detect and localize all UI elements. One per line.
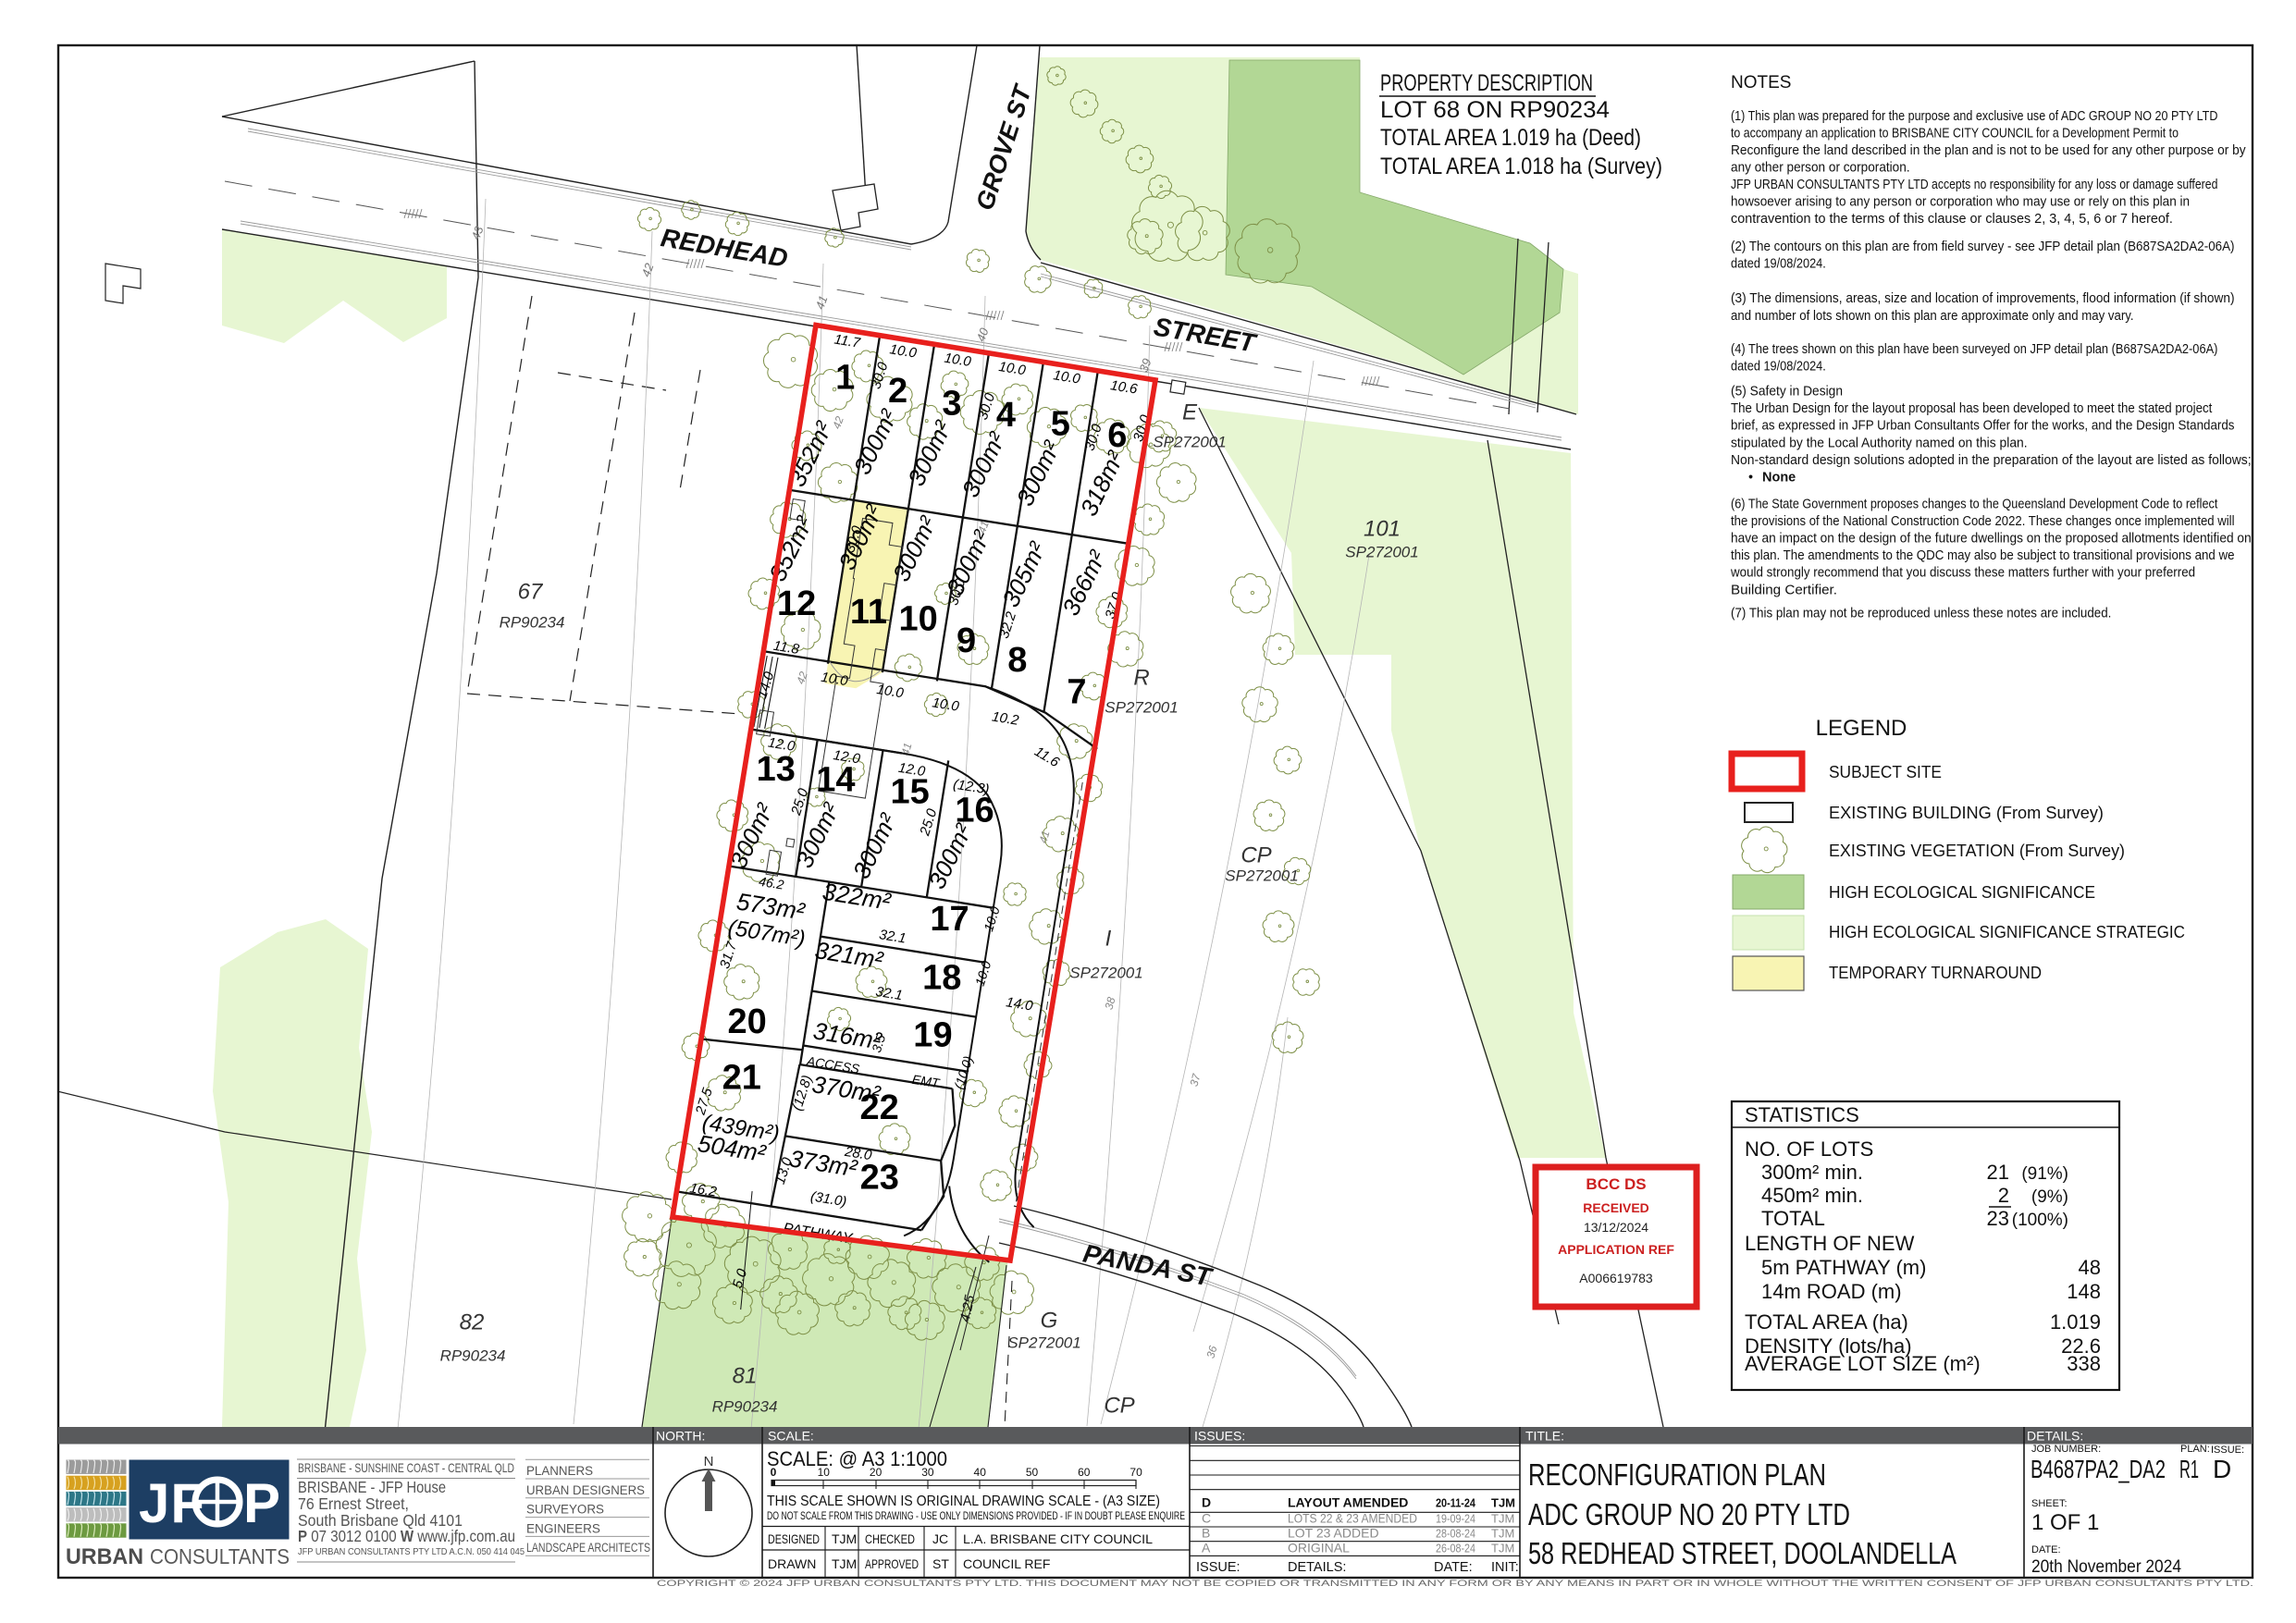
svg-text:Building Certifier.: Building Certifier. — [1731, 583, 1837, 597]
svg-text:7: 7 — [1067, 672, 1086, 711]
svg-text:DETAILS:: DETAILS: — [1288, 1560, 1346, 1575]
svg-text:SCALE:: SCALE: — [768, 1429, 814, 1444]
svg-text:SUBJECT SITE: SUBJECT SITE — [1829, 763, 1942, 781]
svg-text:300m²: 300m² — [1011, 436, 1067, 510]
svg-text:NO. OF LOTS: NO. OF LOTS — [1745, 1137, 1873, 1161]
svg-text:20-11-24: 20-11-24 — [1436, 1496, 1476, 1510]
svg-text:450m² min.: 450m² min. — [1761, 1184, 1863, 1207]
svg-text:318m²: 318m² — [1074, 446, 1129, 521]
svg-text:21: 21 — [1987, 1161, 2009, 1184]
svg-text:41: 41 — [812, 294, 830, 312]
svg-text:EXISTING VEGETATION (From Surv: EXISTING VEGETATION (From Survey) — [1829, 842, 2125, 860]
svg-text:REDHEAD: REDHEAD — [659, 223, 790, 273]
svg-text:APPLICATION REF: APPLICATION REF — [1558, 1242, 1674, 1257]
svg-text:THIS SCALE SHOWN IS ORIGINAL D: THIS SCALE SHOWN IS ORIGINAL DRAWING SCA… — [767, 1494, 1160, 1509]
svg-text:322m²: 322m² — [821, 878, 894, 916]
svg-text:APPROVED: APPROVED — [865, 1556, 919, 1571]
svg-text:23: 23 — [860, 1159, 899, 1198]
svg-text:40: 40 — [973, 326, 991, 343]
svg-text:10.0: 10.0 — [981, 904, 1003, 933]
svg-text:RP90234: RP90234 — [440, 1347, 506, 1365]
svg-text:DESIGNED: DESIGNED — [768, 1531, 820, 1546]
svg-text:8: 8 — [1007, 641, 1027, 680]
svg-text:1: 1 — [835, 359, 855, 398]
svg-text:3: 3 — [942, 385, 961, 424]
svg-text:(6) The State Government propo: (6) The State Government proposes change… — [1731, 498, 2217, 512]
svg-text:148: 148 — [2067, 1280, 2101, 1303]
svg-text:13/12/2024: 13/12/2024 — [1584, 1220, 1648, 1235]
svg-text:338: 338 — [2067, 1352, 2101, 1375]
svg-text:300m² min.: 300m² min. — [1761, 1161, 1863, 1184]
svg-text:JOB NUMBER:: JOB NUMBER: — [2031, 1444, 2101, 1455]
svg-text:GROVE ST: GROVE ST — [970, 80, 1037, 214]
svg-text:(31.0): (31.0) — [809, 1188, 847, 1210]
svg-text:67: 67 — [518, 580, 544, 605]
svg-text:10.0: 10.0 — [888, 341, 918, 361]
svg-text:31.7: 31.7 — [717, 940, 740, 971]
svg-text:this plan. The amendments to t: this plan. The amendments to the QDC may… — [1731, 548, 2235, 563]
svg-text:dated 19/08/2024.: dated 19/08/2024. — [1731, 257, 1826, 272]
svg-text:TOTAL AREA 1.018 ha (Survey): TOTAL AREA 1.018 ha (Survey) — [1380, 154, 1662, 179]
svg-text:ISSUES:: ISSUES: — [1194, 1429, 1245, 1444]
svg-text:ENGINEERS: ENGINEERS — [526, 1521, 600, 1535]
svg-text:50: 50 — [1026, 1466, 1039, 1479]
svg-text:1 OF 1: 1 OF 1 — [2031, 1510, 2099, 1535]
svg-text:L.A. BRISBANE CITY COUNCIL: L.A. BRISBANE CITY COUNCIL — [963, 1531, 1153, 1546]
svg-text:10: 10 — [898, 600, 937, 639]
svg-text:38: 38 — [1103, 995, 1118, 1011]
svg-text:(2) The contours on this plan: (2) The contours on this plan are from f… — [1731, 240, 2235, 254]
svg-text:5: 5 — [1051, 404, 1070, 443]
svg-text:SP272001: SP272001 — [1105, 699, 1178, 717]
svg-text:20th November 2024: 20th November 2024 — [2031, 1557, 2181, 1577]
svg-text:dated 19/08/2024.: dated 19/08/2024. — [1731, 360, 1826, 375]
svg-text:any other person or corporatio: any other person or corporation. — [1731, 161, 1910, 176]
svg-text:•: • — [1748, 470, 1753, 485]
svg-text:stipulated by the Local Author: stipulated by the Local Authority named … — [1731, 436, 2028, 450]
svg-text:46.2: 46.2 — [758, 874, 785, 892]
svg-text:RP90234: RP90234 — [500, 614, 565, 632]
svg-text:10.0: 10.0 — [943, 350, 972, 370]
svg-text:1.019: 1.019 — [2050, 1310, 2101, 1334]
svg-text:ORIGINAL: ORIGINAL — [1288, 1541, 1350, 1555]
svg-text:20: 20 — [870, 1466, 883, 1479]
svg-text:23: 23 — [1987, 1207, 2009, 1230]
svg-text:B: B — [1202, 1526, 1210, 1541]
svg-text:None: None — [1762, 470, 1796, 485]
svg-text:(4) The trees shown on this pl: (4) The trees shown on this plan have be… — [1731, 342, 2217, 357]
svg-text:TJM: TJM — [1491, 1527, 1514, 1541]
svg-text:CHECKED: CHECKED — [865, 1531, 915, 1546]
svg-text:DATE:: DATE: — [1434, 1560, 1473, 1575]
svg-text:CP: CP — [1241, 843, 1271, 868]
svg-text:TJM: TJM — [832, 1556, 857, 1571]
svg-text:10.6: 10.6 — [1109, 377, 1139, 397]
svg-text:60: 60 — [1078, 1466, 1091, 1479]
svg-text:11.6: 11.6 — [1031, 744, 1062, 770]
svg-text:13: 13 — [757, 750, 796, 789]
svg-text:LOT 23 ADDED: LOT 23 ADDED — [1288, 1526, 1379, 1541]
svg-text:28-08-24: 28-08-24 — [1436, 1527, 1475, 1541]
svg-text:TOTAL: TOTAL — [1761, 1207, 1825, 1230]
svg-text:(10.0): (10.0) — [951, 1054, 976, 1091]
svg-text:R1: R1 — [2179, 1455, 2199, 1483]
svg-text:JFP URBAN CONSULTANTS PTY LTD: JFP URBAN CONSULTANTS PTY LTD A.C.N. 050… — [298, 1546, 525, 1557]
svg-text:58 REDHEAD STREET, DOOLANDELLA: 58 REDHEAD STREET, DOOLANDELLA — [1528, 1536, 1957, 1570]
svg-text:TJM: TJM — [832, 1531, 857, 1546]
svg-text:brief, as expressed in JFP Urb: brief, as expressed in JFP Urban Consult… — [1731, 419, 2235, 434]
svg-text:76 Ernest Street,: 76 Ernest Street, — [298, 1494, 409, 1513]
svg-text:JC: JC — [932, 1531, 948, 1546]
svg-text:P: P — [243, 1472, 280, 1534]
svg-text:6: 6 — [1107, 416, 1127, 455]
svg-text:42: 42 — [794, 670, 810, 686]
svg-text:COPYRIGHT © 2024 JFP URBAN CON: COPYRIGHT © 2024 JFP URBAN CONSULTANTS P… — [657, 1579, 2253, 1588]
svg-text:JFP URBAN CONSULTANTS PTY LTD: JFP URBAN CONSULTANTS PTY LTD accepts no… — [1731, 178, 2217, 192]
svg-text:(7) This plan may not be repro: (7) This plan may not be reproduced unle… — [1731, 607, 2111, 621]
svg-text:37: 37 — [1188, 1071, 1204, 1088]
svg-text:C: C — [1202, 1511, 1211, 1526]
svg-text:32.2: 32.2 — [996, 609, 1019, 641]
svg-text:AVERAGE LOT SIZE (m²): AVERAGE LOT SIZE (m²) — [1745, 1352, 1981, 1375]
svg-text:DRAWN: DRAWN — [768, 1556, 816, 1571]
svg-text:NORTH:: NORTH: — [656, 1429, 705, 1444]
svg-text:TJM: TJM — [1491, 1542, 1514, 1555]
svg-text:SP272001: SP272001 — [1345, 544, 1418, 561]
svg-text:INIT:: INIT: — [1491, 1560, 1519, 1575]
svg-text:70: 70 — [1129, 1466, 1142, 1479]
svg-text:2: 2 — [888, 372, 907, 411]
svg-text:STREET: STREET — [1152, 312, 1260, 358]
svg-text:10.0: 10.0 — [931, 695, 960, 714]
svg-text:A006619783: A006619783 — [1579, 1271, 1653, 1285]
svg-text:10.0: 10.0 — [875, 682, 905, 701]
svg-text:would strongly recommend that: would strongly recommend that you discus… — [1730, 566, 2195, 581]
svg-text:BRISBANE - SUNSHINE COAST - CE: BRISBANE - SUNSHINE COAST - CENTRAL QLD — [298, 1460, 514, 1475]
svg-text:300m²: 300m² — [941, 525, 996, 600]
svg-text:11.7: 11.7 — [833, 332, 861, 351]
svg-text:TITLE:: TITLE: — [1525, 1429, 1564, 1444]
svg-text:LOT 68 ON RP90234: LOT 68 ON RP90234 — [1380, 97, 1610, 123]
svg-text:14.0: 14.0 — [1005, 994, 1034, 1014]
svg-text:352m²: 352m² — [763, 511, 819, 586]
svg-text:The Urban Design for the layou: The Urban Design for the layout proposal… — [1731, 401, 2212, 416]
svg-text:18: 18 — [922, 959, 961, 998]
svg-text:10.0: 10.0 — [997, 359, 1027, 378]
svg-text:LEGEND: LEGEND — [1816, 716, 1907, 741]
svg-text:10: 10 — [818, 1466, 831, 1479]
svg-text:DETAILS:: DETAILS: — [2027, 1429, 2083, 1444]
svg-text:SHEET:: SHEET: — [2031, 1498, 2068, 1509]
svg-text:ISSUE:: ISSUE: — [1196, 1560, 1241, 1575]
svg-text:BCC DS: BCC DS — [1586, 1175, 1646, 1193]
svg-text:contravention to the terms of: contravention to the terms of this claus… — [1731, 212, 2173, 227]
svg-text:STATISTICS: STATISTICS — [1745, 1103, 1859, 1126]
svg-text:(91%): (91%) — [2021, 1164, 2068, 1184]
svg-text:11.8: 11.8 — [772, 638, 801, 658]
svg-text:(3) The dimensions, areas, siz: (3) The dimensions, areas, size and loca… — [1731, 291, 2235, 306]
svg-text:COUNCIL REF: COUNCIL REF — [963, 1556, 1050, 1571]
svg-text:PLAN:: PLAN: — [2180, 1444, 2210, 1455]
svg-text:10.2: 10.2 — [991, 708, 1020, 728]
svg-text:(100%): (100%) — [2012, 1211, 2068, 1230]
svg-text:CONSULTANTS: CONSULTANTS — [150, 1544, 290, 1568]
svg-text:the provisions of the National: the provisions of the National Construct… — [1731, 514, 2235, 529]
svg-text:howsoever arising to any perso: howsoever arising to any person or corpo… — [1731, 195, 2190, 210]
svg-text:D: D — [1202, 1495, 1211, 1510]
svg-text:CP: CP — [1104, 1394, 1134, 1419]
svg-text:26-08-24: 26-08-24 — [1436, 1542, 1475, 1555]
svg-text:Non-standard design solutions: Non-standard design solutions adopted in… — [1731, 453, 2252, 468]
svg-text:A: A — [1202, 1541, 1211, 1555]
svg-text:I: I — [1105, 927, 1112, 952]
svg-text:have an impact on the design o: have an impact on the design of the futu… — [1731, 532, 2252, 547]
svg-text:RP90234: RP90234 — [712, 1398, 778, 1416]
svg-text:30.0: 30.0 — [975, 391, 998, 423]
svg-text:LOTS 22 & 23 AMENDED: LOTS 22 & 23 AMENDED — [1288, 1511, 1417, 1526]
svg-text:HIGH ECOLOGICAL SIGNIFICANCE S: HIGH ECOLOGICAL SIGNIFICANCE STRATEGIC — [1829, 923, 2185, 941]
svg-text:305m²: 305m² — [996, 536, 1052, 611]
svg-text:12: 12 — [777, 584, 816, 623]
svg-text:(1) This plan was prepared for: (1) This plan was prepared for the purpo… — [1731, 109, 2217, 124]
svg-text:SP272001: SP272001 — [1153, 434, 1226, 451]
svg-text:N: N — [704, 1454, 714, 1469]
svg-text:SURVEYORS: SURVEYORS — [526, 1503, 604, 1517]
svg-text:LANDSCAPE ARCHITECTS: LANDSCAPE ARCHITECTS — [526, 1541, 650, 1555]
svg-text:LENGTH OF NEW: LENGTH OF NEW — [1745, 1232, 1915, 1255]
svg-text:48: 48 — [2079, 1256, 2101, 1279]
svg-text:10.0: 10.0 — [820, 670, 849, 689]
svg-text:DATE:: DATE: — [2031, 1544, 2061, 1555]
svg-text:TOTAL AREA (ha): TOTAL AREA (ha) — [1745, 1310, 1908, 1334]
svg-text:R: R — [1133, 666, 1149, 691]
svg-text:300m²: 300m² — [848, 404, 904, 479]
svg-text:NOTES: NOTES — [1731, 73, 1791, 92]
svg-text:101: 101 — [1364, 517, 1401, 542]
svg-text:G: G — [1041, 1309, 1058, 1334]
svg-text:SP272001: SP272001 — [1225, 867, 1298, 885]
svg-text:URBAN DESIGNERS: URBAN DESIGNERS — [526, 1483, 645, 1497]
svg-text:32.1: 32.1 — [878, 927, 907, 946]
svg-text:20: 20 — [727, 1002, 766, 1041]
svg-text:5m PATHWAY (m): 5m PATHWAY (m) — [1761, 1256, 1926, 1279]
svg-text:300m²: 300m² — [847, 808, 903, 883]
svg-text:82: 82 — [460, 1310, 485, 1335]
svg-text:19: 19 — [913, 1016, 952, 1055]
svg-text:16.2: 16.2 — [688, 1180, 718, 1199]
svg-text:21: 21 — [722, 1058, 761, 1097]
svg-text:E: E — [1182, 400, 1198, 425]
svg-text:14: 14 — [816, 761, 855, 800]
svg-text:0: 0 — [771, 1466, 777, 1479]
svg-text:SCALE: @ A3 1:1000: SCALE: @ A3 1:1000 — [767, 1447, 947, 1470]
svg-text:300m²: 300m² — [957, 427, 1012, 502]
svg-text:BRISBANE - JFP House: BRISBANE - JFP House — [298, 1478, 446, 1496]
svg-text:TOTAL AREA 1.019 ha (Deed): TOTAL AREA 1.019 ha (Deed) — [1380, 125, 1641, 151]
svg-text:B4687PA2_DA2: B4687PA2_DA2 — [2031, 1455, 2166, 1483]
svg-text:TJM: TJM — [1491, 1512, 1514, 1526]
svg-text:HIGH ECOLOGICAL SIGNIFICANCE: HIGH ECOLOGICAL SIGNIFICANCE — [1829, 883, 2095, 902]
svg-text:PLANNERS: PLANNERS — [526, 1464, 593, 1478]
svg-text:42: 42 — [638, 261, 656, 278]
svg-text:RECEIVED: RECEIVED — [1583, 1200, 1649, 1215]
svg-text:19-09-24: 19-09-24 — [1436, 1512, 1475, 1526]
svg-text:LAYOUT AMENDED: LAYOUT AMENDED — [1288, 1495, 1408, 1510]
svg-text:40: 40 — [974, 1466, 987, 1479]
svg-text:PROPERTY DESCRIPTION: PROPERTY DESCRIPTION — [1380, 70, 1593, 96]
svg-text:ADC GROUP NO 20 PTY LTD: ADC GROUP NO 20 PTY LTD — [1528, 1497, 1850, 1531]
svg-text:14m ROAD (m): 14m ROAD (m) — [1761, 1280, 1902, 1303]
svg-text:4: 4 — [996, 396, 1016, 435]
svg-text:P 07 3012 0100 W www.jfp.com.: P 07 3012 0100 W www.jfp.com.au — [298, 1527, 515, 1545]
svg-text:EMT: EMT — [911, 1072, 942, 1091]
svg-text:SP272001: SP272001 — [1069, 965, 1142, 982]
svg-text:TJM: TJM — [1491, 1496, 1515, 1510]
svg-text:D: D — [2213, 1455, 2231, 1483]
svg-text:30: 30 — [921, 1466, 934, 1479]
svg-text:(9%): (9%) — [2031, 1187, 2068, 1207]
svg-text:EXISTING BUILDING (From Survey: EXISTING BUILDING (From Survey) — [1829, 804, 2104, 822]
svg-text:10.0: 10.0 — [1052, 367, 1081, 387]
svg-text:13.0: 13.0 — [772, 1155, 796, 1187]
svg-text:9: 9 — [957, 621, 976, 660]
svg-text:ST: ST — [932, 1556, 949, 1571]
svg-text:17: 17 — [930, 900, 969, 939]
svg-text:10.0: 10.0 — [972, 959, 994, 988]
svg-text:Reconfigure the land described: Reconfigure the land described in the pl… — [1731, 143, 2246, 158]
svg-text:RECONFIGURATION PLAN: RECONFIGURATION PLAN — [1528, 1457, 1826, 1492]
svg-text:to accompany an application to: to accompany an application to BRISBANE … — [1731, 126, 2179, 141]
svg-text:11: 11 — [850, 593, 887, 632]
svg-text:81: 81 — [733, 1364, 758, 1389]
svg-text:2: 2 — [1998, 1184, 2009, 1207]
svg-text:(5) Safety in Design: (5) Safety in Design — [1731, 385, 1843, 400]
svg-text:36: 36 — [1204, 1344, 1220, 1359]
svg-text:and number of lots shown on th: and number of lots shown on this plan ar… — [1731, 309, 2134, 324]
svg-text:URBAN: URBAN — [66, 1544, 143, 1569]
svg-text:TEMPORARY TURNAROUND: TEMPORARY TURNAROUND — [1829, 964, 2042, 982]
svg-text:30.0: 30.0 — [1082, 422, 1105, 453]
svg-text:DO NOT SCALE FROM THIS DRAWING: DO NOT SCALE FROM THIS DRAWING - USE ONL… — [767, 1511, 1185, 1522]
svg-text:321m²: 321m² — [813, 936, 886, 974]
svg-text:SP272001: SP272001 — [1007, 1334, 1080, 1352]
